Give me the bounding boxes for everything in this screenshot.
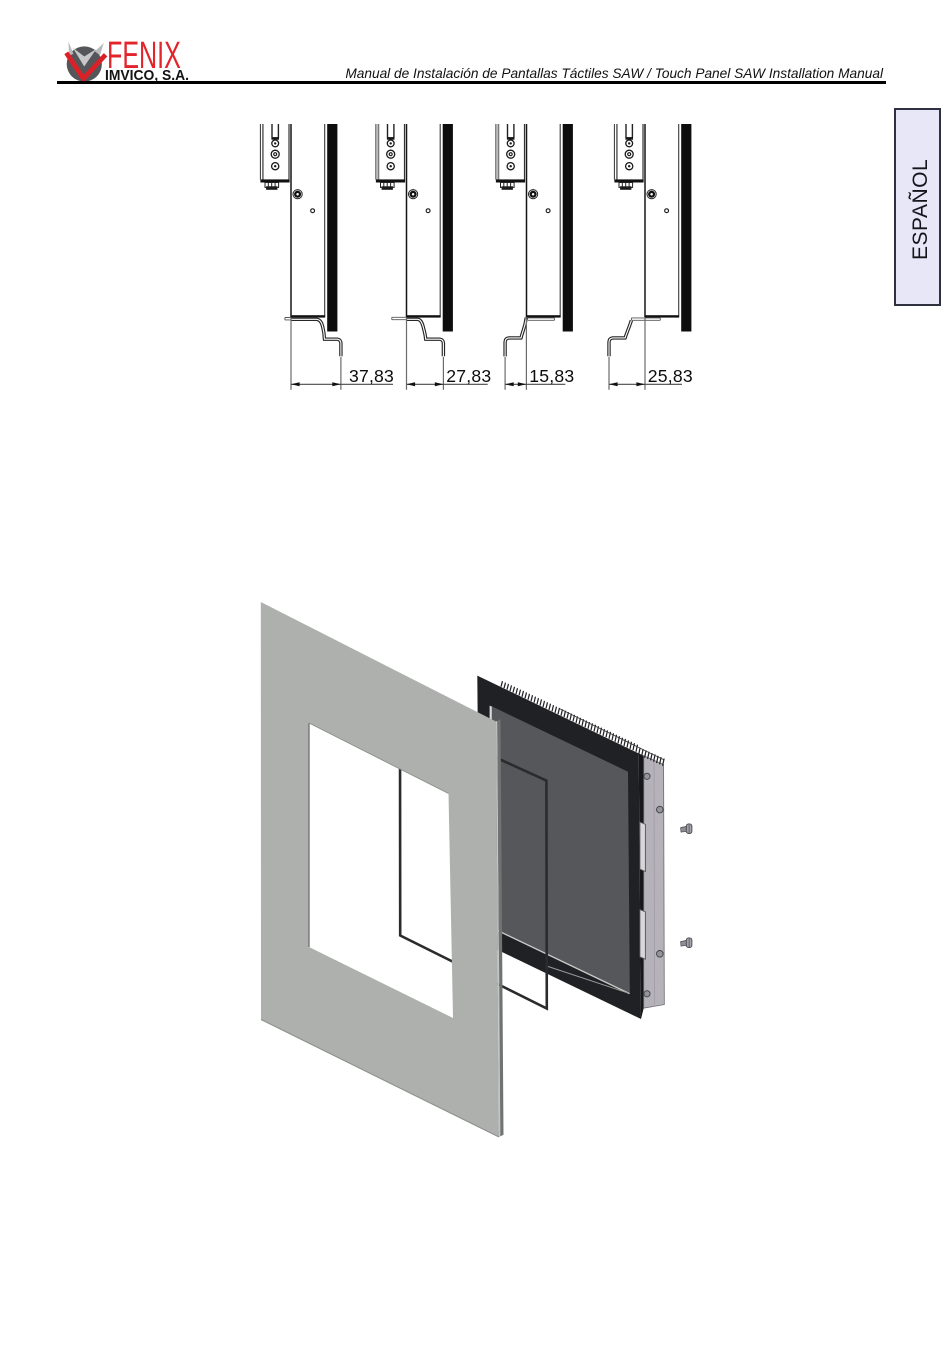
svg-text:27,83: 27,83 [446, 366, 491, 386]
svg-text:15,83: 15,83 [529, 366, 574, 386]
svg-text:25,83: 25,83 [648, 366, 693, 386]
svg-text:37,83: 37,83 [349, 366, 394, 386]
